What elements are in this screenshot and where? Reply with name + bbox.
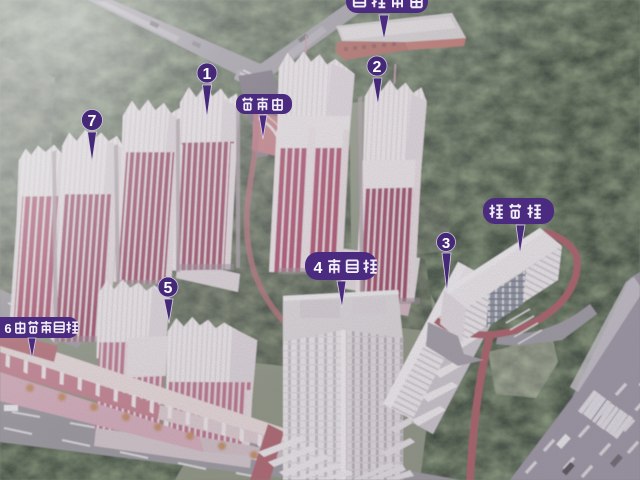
svg-text:3: 3: [442, 235, 450, 252]
svg-text:6: 6: [4, 321, 11, 336]
svg-text:1: 1: [203, 66, 212, 83]
svg-text:2: 2: [373, 59, 382, 76]
svg-text:7: 7: [88, 113, 97, 130]
svg-text:5: 5: [164, 280, 173, 297]
svg-text:4: 4: [314, 260, 323, 277]
